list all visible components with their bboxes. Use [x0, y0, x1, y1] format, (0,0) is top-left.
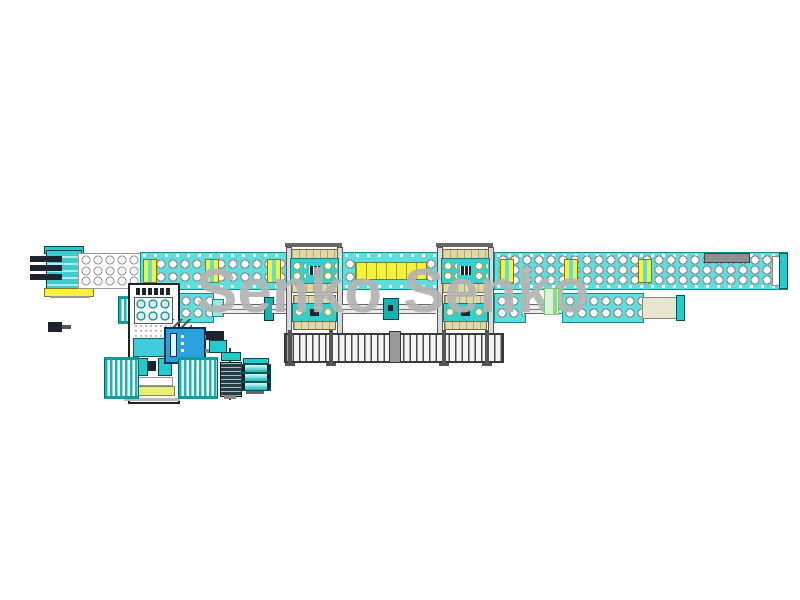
conveyor-leg: [485, 330, 489, 366]
line-end-cap: [779, 253, 788, 289]
entry-machine-foot-line: [50, 296, 90, 298]
yellow-coupler: [143, 259, 157, 283]
transfer-machine-top: [206, 331, 224, 340]
entry-machine-arm-top: [30, 256, 62, 262]
chain-conveyor-joint: [389, 331, 401, 363]
conveyor-leg: [288, 330, 292, 366]
entry-machine-motor-stub: [62, 325, 71, 329]
roller-bed-cylinder-3: [241, 382, 271, 391]
tower-roller-row: [135, 310, 172, 322]
cad-drawing-canvas: Senko Senko: [0, 0, 800, 600]
cabinet-door-slot: [170, 333, 177, 357]
roller-bed-cylinder-2: [241, 373, 271, 382]
tower-roller-box: [134, 297, 173, 324]
wrapper-foot: [224, 395, 236, 399]
tower-cyan-platform: [133, 338, 165, 357]
striped-conveyor-right: [178, 357, 218, 399]
entry-machine-arm-mid: [30, 265, 62, 271]
wrapper-crossbar: [221, 352, 241, 361]
cabinet-indicators: [181, 335, 184, 338]
striped-conveyor-left: [104, 357, 139, 399]
roller-bed-cylinder-1: [241, 364, 271, 373]
wrapper-body: [220, 362, 242, 397]
entry-machine-motor: [48, 322, 62, 332]
watermark-text: Senko Senko: [196, 261, 589, 323]
tower-top-bar: [134, 288, 170, 295]
lower-line-exit-table: [642, 297, 680, 319]
tower-lower-tray: [133, 377, 173, 386]
tower-roller-row: [135, 298, 172, 310]
conveyor-leg: [329, 330, 333, 366]
gray-guard-bar: [704, 253, 750, 263]
yellow-coupler: [638, 259, 652, 283]
roller-bed-base: [246, 391, 264, 394]
conveyor-leg: [442, 330, 446, 366]
station-crossbar: [285, 243, 342, 247]
tower-clamp-center: [148, 361, 156, 371]
watermark-logo-green-rect: [544, 288, 559, 315]
station-crossbar: [436, 243, 493, 247]
lower-line-end-cap: [676, 295, 685, 321]
entry-machine-arm-bottom: [30, 274, 62, 280]
